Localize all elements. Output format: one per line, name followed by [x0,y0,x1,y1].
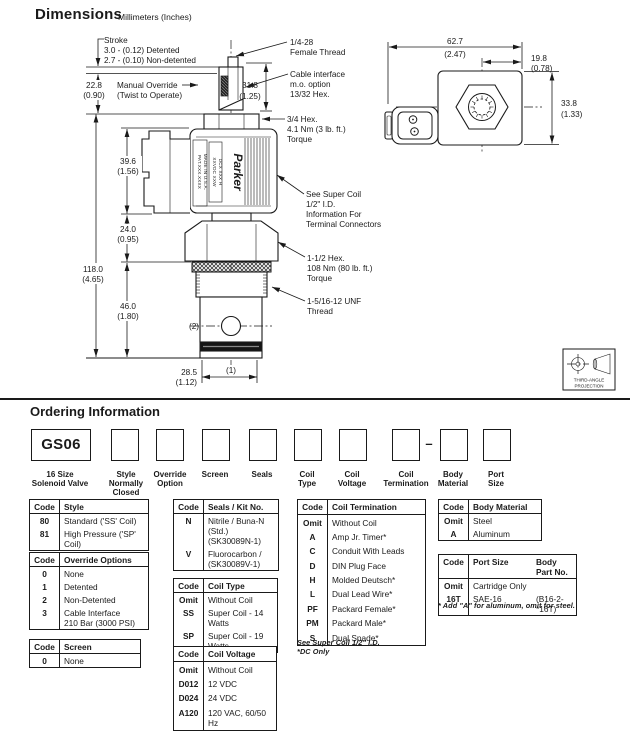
dim-39-6-in: (1.56) [117,167,139,176]
model-code-box-screen[interactable] [202,429,230,461]
table-row: SSSuper Coil - 14 Watts [174,606,278,629]
dim-28-5-mm: 28.5 [181,368,197,377]
field-label-port-size: PortSize [461,470,531,488]
hex34-callout-1: 3/4 Hex. [287,115,318,124]
code-cell: SS [174,606,204,629]
dim-33-8-mm: 33.8 [561,99,577,108]
table-header-row: CodePort SizeBody Part No. [439,555,577,579]
cable-callout-2: m.o. option [290,80,331,89]
cable-callout-1: Cable interface [290,70,346,79]
header-cell: Code [298,500,328,515]
thread-callout-2: Female Thread [290,48,346,57]
code-cell: Omit [174,662,204,677]
coil-connector [142,131,190,213]
dim-39-6-mm: 39.6 [120,157,136,166]
table-row: OmitCartridge Only [439,579,577,593]
dim-62-7-mm: 62.7 [447,37,463,46]
port-1-label: (1) [226,366,236,375]
desc-cell: None [60,567,149,581]
code-cell: C [298,544,328,558]
table-row: AAmp Jr. Timer* [298,530,426,544]
desc-cell: Packard Female* [328,602,426,616]
table-header-row: CodeCoil Termination [298,500,426,515]
table-row: AAluminum [439,527,542,541]
thread-callout-1: 1/4-28 [290,38,314,47]
desc-cell: Without Coil [328,515,426,530]
table-header-row: CodeStyle [30,500,149,514]
cable-callout-3: 13/32 Hex. [290,90,330,99]
header-cell: Port Size [469,555,533,579]
desc-cell: Cable Interface210 Bar (3000 PSI) [60,606,149,630]
supercoil-callout-4: Terminal Connectors [306,220,381,229]
model-code-box-coil-voltage[interactable] [339,429,367,461]
header-cell: Coil Type [204,579,278,593]
table-header-row: CodeOverride Options [30,553,149,567]
table-row: OmitWithout Coil [174,662,277,677]
valve-side-view [385,58,542,152]
desc-cell: Dual Lead Wire* [328,587,426,601]
table-header-row: CodeScreen [30,640,141,654]
seals-table: CodeSeals / Kit No. NNitrile / Buna-N (S… [173,499,279,571]
code-cell: PF [298,602,328,616]
dim-118-in: (4.65) [82,275,104,284]
table-row: 0None [30,654,141,668]
model-code-box-coil-termination[interactable] [392,429,420,461]
table-row: OmitWithout Coil [298,515,426,530]
table-row: D02424 VDC [174,691,277,705]
dim-46-in: (1.80) [117,312,139,321]
desc-cell: Steel [469,514,542,528]
code-cell: 80 [30,514,60,528]
supercoil-callout-3: Information For [306,210,362,219]
port-size-footnote: * Add "A" for aluminum, omit for steel. [438,601,575,610]
code-cell: 81 [30,527,60,551]
code-cell: L [298,587,328,601]
code-cell: Omit [298,515,328,530]
desc-cell: None [60,654,141,668]
desc-cell: Super Coil - 14 Watts [204,606,278,629]
table-row: OmitSteel [439,514,542,528]
table-row: PMPackard Male* [298,616,426,630]
table-row: 80Standard ('SS' Coil) [30,514,149,528]
desc-cell: 120 VAC, 60/50 Hz [204,706,277,731]
manual-override-label-2: (Twist to Operate) [117,91,182,100]
code-cell: 0 [30,654,60,668]
coil-type-table: CodeCoil Type OmitWithout Coil SSSuper C… [173,578,278,653]
table-header-row: CodeCoil Type [174,579,278,593]
header-cell: Code [174,500,204,514]
header-cell: Coil Voltage [204,647,277,662]
desc-cell: High Pressure ('SP' Coil) [60,527,149,551]
code-cell: Omit [439,579,469,593]
code-cell: D012 [174,677,204,691]
stroke-nondetented-label: 2.7 - (0.10) Non-detented [104,56,196,65]
hex34-callout-3: Torque [287,135,312,144]
table-row: A120120 VAC, 60/50 Hz [174,706,277,731]
projection-label-1: THIRD-ANGLE [574,378,605,383]
header-cell: Coil Termination [328,500,426,515]
table-row: LDual Lead Wire* [298,587,426,601]
hex112-callout-3: Torque [307,274,332,283]
table-row: CConduit With Leads [298,544,426,558]
desc-cell: Detented [60,580,149,593]
desc-cell: 24 VDC [204,691,277,705]
model-code-box-style[interactable] [111,429,139,461]
header-cell: Seals / Kit No. [204,500,279,514]
table-row: DDIN Plug Face [298,559,426,573]
code-cell: N [174,514,204,548]
desc-cell: Conduit With Leads [328,544,426,558]
model-code-prefix-box: GS06 [31,429,91,461]
code-cell: A120 [174,706,204,731]
code-cell: H [298,573,328,587]
code-cell: A [439,527,469,541]
desc-cell: Amp Jr. Timer* [328,530,426,544]
code-cell: 0 [30,567,60,581]
dim-46-mm: 46.0 [120,302,136,311]
code-cell: V [174,547,204,571]
supercoil-callout-2: 1/2" I.D. [306,200,335,209]
desc-cell: Standard ('SS' Coil) [60,514,149,528]
desc-cell: 12 VDC [204,677,277,691]
dim-118-mm: 118.0 [83,265,103,274]
style-table: CodeStyle 80Standard ('SS' Coil) 81High … [29,499,149,551]
deutsch-connector [385,107,438,144]
code-cell: 2 [30,593,60,606]
dim-19-8-mm: 19.8 [531,54,547,63]
screen-table: CodeScreen 0None [29,639,141,668]
manual-override-label: Manual Override [117,81,178,90]
table-header-row: CodeBody Material [439,500,542,514]
table-row: PFPackard Female* [298,602,426,616]
code-cell: D024 [174,691,204,705]
catalog-page: { "header": {"title": "Dimensions", "sub… [0,0,630,740]
table-header-row: CodeCoil Voltage [174,647,277,662]
dim-62-7-in: (2.47) [444,50,466,59]
coil-voltage-text: XXVDC XXW [212,157,217,187]
model-code-prefix: GS06 [41,436,81,453]
desc-cell: DIN Plug Face [328,559,426,573]
table-row: D01212 VDC [174,677,277,691]
termination-footnote-1: See Super Coil 1/2" I.D. [297,638,380,647]
table-row: 81High Pressure ('SP' Coil) [30,527,149,551]
table-row: HMolded Deutsch* [298,573,426,587]
code-cell: Omit [174,593,204,607]
parker-logo: Parker [231,153,245,192]
code-cell: Omit [439,514,469,528]
desc-cell: Molded Deutsch* [328,573,426,587]
section-divider [0,398,630,400]
supercoil-callout-1: See Super Coil [306,190,361,199]
code-cell: 3 [30,606,60,630]
header-cell: Code [30,640,60,654]
dim-31-8-in: (1.25) [239,92,261,101]
hex112-callout-2: 108 Nm (80 lb. ft.) [307,264,373,273]
code-cell: 1 [30,580,60,593]
dim-24-mm: 24.0 [120,225,136,234]
desc-cell: Cartridge Only [469,579,533,593]
header-cell: Code [174,647,204,662]
header-cell: Body Part No. [532,555,577,579]
dim-28-5-in: (1.12) [176,378,198,387]
coil-made-in-text: MADE IN U.S.A. [203,154,208,191]
ordering-title: Ordering Information [30,404,160,419]
stroke-detented-label: 3.0 - (0.12) Detented [104,46,180,55]
desc-cell: Without Coil [204,593,278,607]
table-row: NNitrile / Buna-N (Std.)(SK30089N-1) [174,514,279,548]
table-row: 2Non-Detented [30,593,149,606]
table-row: 0None [30,567,149,581]
unf-callout-1: 1-5/16-12 UNF [307,297,361,306]
model-code-separator: – [420,436,438,451]
desc-cell: Nitrile / Buna-N (Std.)(SK30089N-1) [204,514,279,548]
desc-cell: Packard Male* [328,616,426,630]
header-cell: Screen [60,640,141,654]
table-row: 1Detented [30,580,149,593]
model-code-box-body-material[interactable] [440,429,468,461]
code-cell: A [298,530,328,544]
table-row: OmitWithout Coil [174,593,278,607]
projection-label-2: PROJECTION [574,384,603,389]
field-label-valve: 16 SizeSolenoid Valve [25,470,95,488]
header-cell: Style [60,500,149,514]
termination-footnote-2: *DC Only [297,647,329,656]
part-cell [532,579,577,593]
code-cell: D [298,559,328,573]
stroke-label: Stroke [104,36,128,45]
third-angle-projection-symbol: THIRD-ANGLE PROJECTION [563,349,615,390]
dim-22-8-mm: 22.8 [86,81,102,90]
coil-part-text: DCX XXX H [218,159,223,186]
dimensions-drawing: PAT.XXX.XXXX MADE IN U.S.A. XXVDC XXW DC… [0,0,630,398]
desc-cell: Fluorocarbon /(SK30089V-1) [204,547,279,571]
table-row: 3Cable Interface210 Bar (3000 PSI) [30,606,149,630]
model-code-box-override[interactable] [156,429,184,461]
header-cell: Code [30,553,60,567]
model-code-box-seals[interactable] [249,429,277,461]
table-header-row: CodeSeals / Kit No. [174,500,279,514]
coil-voltage-table: CodeCoil Voltage OmitWithout Coil D01212… [173,646,277,731]
code-cell: PM [298,616,328,630]
hex112-callout-1: 1-1/2 Hex. [307,254,345,263]
header-cell: Code [174,579,204,593]
coil-termination-table: CodeCoil Termination OmitWithout Coil AA… [297,499,426,646]
dim-22-8-in: (0.90) [83,91,105,100]
header-cell: Code [30,500,60,514]
header-cell: Code [439,500,469,514]
override-options-table: CodeOverride Options 0None 1Detented 2No… [29,552,149,630]
dim-33-8-in: (1.33) [561,110,583,119]
header-cell: Override Options [60,553,149,567]
model-code-box-coil-type[interactable] [294,429,322,461]
table-row: VFluorocarbon /(SK30089V-1) [174,547,279,571]
port-2-label: (2) [189,322,199,331]
unf-callout-2: Thread [307,307,333,316]
body-material-table: CodeBody Material OmitSteel AAluminum [438,499,542,541]
desc-cell: Without Coil [204,662,277,677]
hex34-callout-2: 4.1 Nm (3 lb. ft.) [287,125,346,134]
model-code-box-port-size[interactable] [483,429,511,461]
header-cell: Body Material [469,500,542,514]
dim-24-in: (0.95) [117,235,139,244]
desc-cell: Aluminum [469,527,542,541]
coil-patent-text: PAT.XXX.XXXX [197,155,202,189]
desc-cell: Non-Detented [60,593,149,606]
header-cell: Code [439,555,469,579]
